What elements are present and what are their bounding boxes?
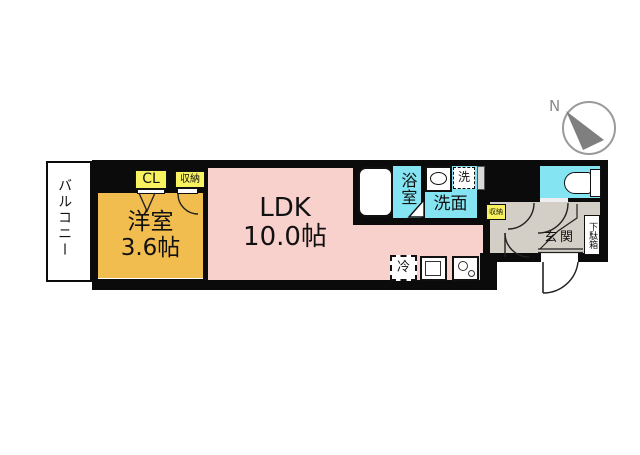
storage-door <box>177 188 198 194</box>
washroom-shelf <box>477 166 485 190</box>
entry-door-arc <box>543 262 578 293</box>
refrigerator-space: 冷 <box>390 255 417 281</box>
closet-cl-box: CL <box>135 170 167 189</box>
hall-storage-label: 収納 <box>489 208 503 216</box>
wall-bottom-entry-left <box>490 253 541 262</box>
ldk-label: LDK 10.0帖 <box>215 194 355 251</box>
toilet-doorway <box>540 198 568 202</box>
western-room-size: 3.6帖 <box>98 235 203 261</box>
western-room-name: 洋室 <box>98 209 203 235</box>
wall-right <box>600 160 608 262</box>
shoe-cabinet: 下駄箱 <box>584 215 600 255</box>
ldk-name: LDK <box>215 194 355 223</box>
shoe-cabinet-label: 下駄箱 <box>587 222 597 249</box>
wall-pipe-space <box>483 160 537 203</box>
storage-label: 収納 <box>180 174 200 186</box>
closet-cl-label: CL <box>142 171 160 187</box>
stove-burner-small <box>468 270 475 277</box>
wall-corner-block <box>480 253 497 290</box>
closet-cl-door <box>137 189 165 194</box>
floor-plan: CL 収納 洗 冷 収納 下駄箱 <box>0 0 640 455</box>
toilet-tank <box>590 169 601 197</box>
washroom-sink-oval <box>430 172 447 185</box>
washroom-label: 洗面 <box>424 195 477 215</box>
kitchen-sink-basin <box>425 261 441 276</box>
bathtub <box>358 167 393 217</box>
entrance-label: 玄関 <box>544 231 576 246</box>
ldk-size: 10.0帖 <box>215 223 355 252</box>
washer-label: 洗 <box>458 171 470 185</box>
compass-icon <box>563 102 615 154</box>
refrigerator-label: 冷 <box>397 261 410 276</box>
washer-space: 洗 <box>453 167 475 189</box>
bathroom-label: 浴室 <box>398 172 416 206</box>
compass-north-label: N <box>549 98 560 115</box>
western-room-label: 洋室 3.6帖 <box>98 209 203 262</box>
storage-box: 収納 <box>175 171 205 188</box>
toilet-bowl <box>564 172 591 194</box>
hall-storage-box: 収納 <box>486 204 506 220</box>
balcony-label: バルコニー <box>56 178 72 258</box>
stove-burner-large <box>458 261 468 271</box>
